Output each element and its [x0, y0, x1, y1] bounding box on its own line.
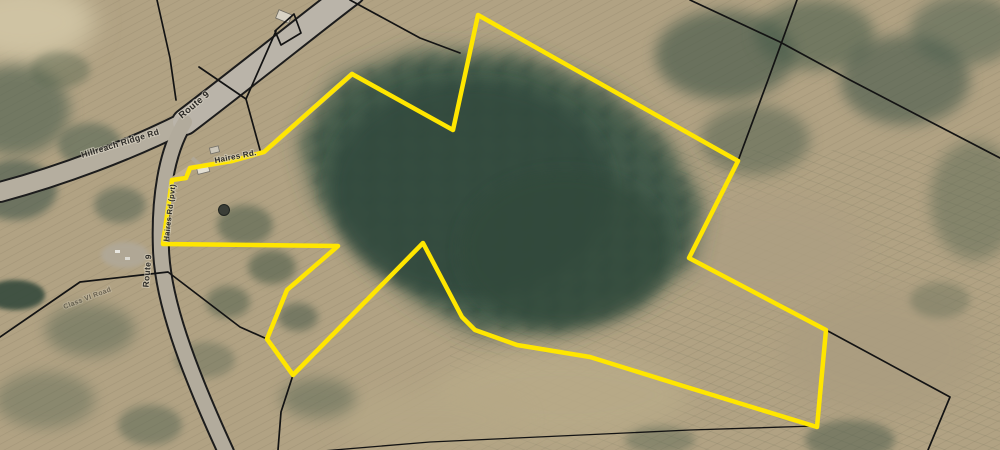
- aerial-map-canvas: Route 9 Hillreach Ridge Rd Haires Rd. Ha…: [0, 0, 1000, 450]
- map-viewport[interactable]: Route 9 Hillreach Ridge Rd Haires Rd. Ha…: [0, 0, 1000, 450]
- tank-structure: [219, 205, 230, 216]
- vehicle-marker: [115, 250, 120, 253]
- vehicle-marker: [125, 257, 130, 260]
